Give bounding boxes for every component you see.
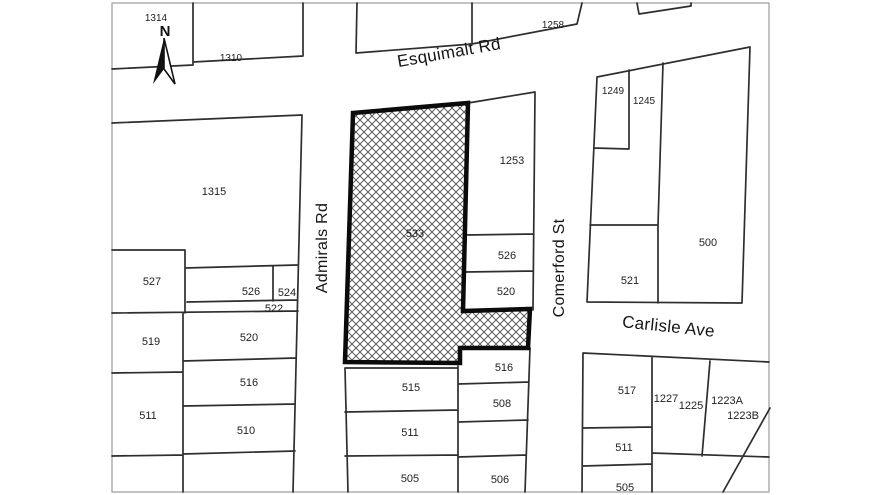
parcel-label-519: 519 xyxy=(142,336,160,348)
parcel-label-505-center: 505 xyxy=(401,473,419,485)
parcel-label-516-left: 516 xyxy=(240,377,258,389)
parcel-label-1245: 1245 xyxy=(633,96,656,107)
street-label-carlisle-ave: Carlisle Ave xyxy=(621,312,716,341)
north-arrow-icon xyxy=(153,38,175,84)
parcel-label-500: 500 xyxy=(699,237,717,249)
parcel-label-533: 533 xyxy=(406,228,424,240)
parcel-label-1310: 1310 xyxy=(220,53,243,64)
parcel-label-511-center: 511 xyxy=(401,427,419,439)
parcel-label-527: 527 xyxy=(143,276,161,288)
street-label-comerford-st: Comerford St xyxy=(551,218,568,317)
parcel-label-1225: 1225 xyxy=(679,400,703,412)
parcel-label-1314: 1314 xyxy=(145,13,168,24)
parcel-label-1253: 1253 xyxy=(500,155,524,167)
parcel-boundaries-southeast-block xyxy=(582,353,770,492)
parcel-label-510: 510 xyxy=(237,425,255,437)
parcel-label-1223b: 1223B xyxy=(727,410,759,422)
parcel-label-516-center: 516 xyxy=(495,362,513,374)
parcel-label-1315: 1315 xyxy=(202,186,226,198)
highlighted-parcel-533 xyxy=(345,103,530,363)
parcel-label-505-right: 505 xyxy=(616,482,634,494)
parcel-label-511-right: 511 xyxy=(615,442,633,454)
parcel-label-526-left: 526 xyxy=(242,286,260,298)
parcel-label-521: 521 xyxy=(621,275,639,287)
parcel-label-1249: 1249 xyxy=(602,86,625,97)
street-label-admirals-rd: Admirals Rd xyxy=(314,203,331,293)
parcel-label-1227: 1227 xyxy=(654,393,678,405)
parcel-label-511-left: 511 xyxy=(139,410,157,422)
parcel-label-515: 515 xyxy=(402,382,420,394)
parcel-label-517: 517 xyxy=(618,385,636,397)
parcel-label-506: 506 xyxy=(491,474,509,486)
parcel-label-524: 524 xyxy=(278,287,296,299)
street-label-esquimalt-rd: Esquimalt Rd xyxy=(396,34,502,71)
parcel-label-1258: 1258 xyxy=(542,20,565,31)
parcel-label-526-center: 526 xyxy=(498,250,516,262)
north-label: N xyxy=(160,23,171,40)
parcel-label-520-left: 520 xyxy=(240,332,258,344)
parcel-label-1223a: 1223A xyxy=(711,395,743,407)
map-canvas: N Esquimalt Rd Admirals Rd Comerford St … xyxy=(0,0,880,495)
parcel-map: N Esquimalt Rd Admirals Rd Comerford St … xyxy=(0,0,880,495)
parcel-label-522: 522 xyxy=(265,303,283,315)
parcel-label-520-center: 520 xyxy=(497,286,515,298)
parcel-label-508: 508 xyxy=(493,398,511,410)
